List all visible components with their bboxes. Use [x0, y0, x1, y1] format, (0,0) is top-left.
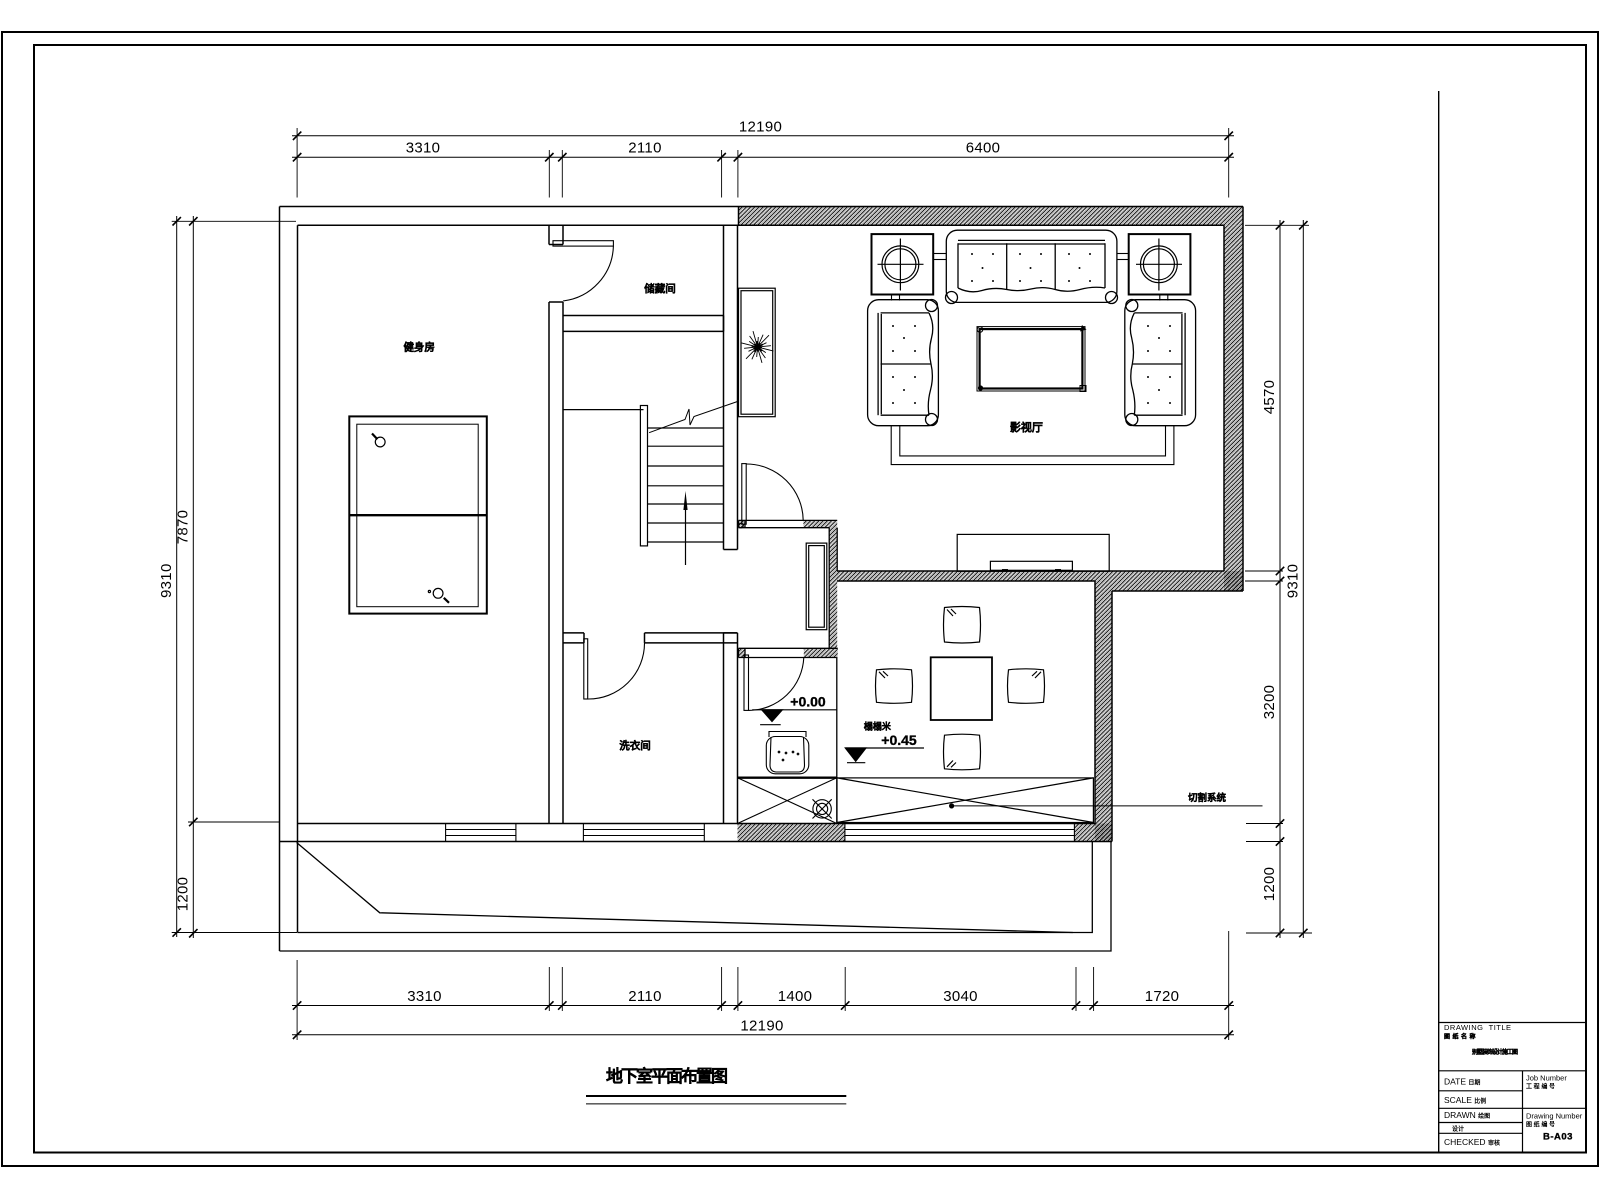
svg-text:+0.45: +0.45: [881, 732, 917, 748]
svg-text:储藏间: 储藏间: [644, 282, 676, 295]
svg-text:12190: 12190: [739, 119, 782, 136]
svg-text:榻榻米: 榻榻米: [863, 721, 892, 732]
svg-text:图 纸 编 号: 图 纸 编 号: [1526, 1121, 1555, 1129]
svg-text:9310: 9310: [1285, 564, 1302, 599]
svg-text:4570: 4570: [1261, 380, 1278, 415]
svg-text:3200: 3200: [1261, 685, 1278, 720]
svg-text:1400: 1400: [778, 988, 813, 1005]
svg-text:设计: 设计: [1452, 1125, 1464, 1133]
svg-text:工 程 编 号: 工 程 编 号: [1526, 1083, 1555, 1091]
svg-text:3310: 3310: [407, 988, 442, 1005]
svg-text:别墅装饰设计施工图: 别墅装饰设计施工图: [1471, 1048, 1518, 1056]
svg-text:9310: 9310: [158, 563, 175, 598]
svg-text:B-A03: B-A03: [1543, 1132, 1573, 1143]
svg-text:1200: 1200: [1261, 867, 1278, 902]
svg-text:健身房: 健身房: [403, 341, 435, 354]
svg-text:DRAWING TITLE: DRAWING TITLE: [1444, 1023, 1512, 1032]
svg-text:3310: 3310: [406, 140, 441, 157]
svg-text:切割系统: 切割系统: [1188, 792, 1227, 804]
svg-text:影视厅: 影视厅: [1010, 420, 1043, 434]
svg-text:图纸名称: 图纸名称: [1444, 1033, 1478, 1041]
svg-text:地下室平面布置图: 地下室平面布置图: [606, 1066, 727, 1086]
svg-text:2110: 2110: [628, 988, 661, 1005]
svg-text:1200: 1200: [175, 877, 192, 912]
svg-text:Job Number: Job Number: [1526, 1074, 1567, 1083]
svg-text:Drawing Number: Drawing Number: [1526, 1112, 1583, 1121]
svg-text:12190: 12190: [740, 1018, 783, 1035]
svg-text:2110: 2110: [628, 140, 661, 157]
svg-text:7870: 7870: [175, 510, 192, 545]
svg-text:6400: 6400: [966, 140, 1001, 157]
svg-text:3040: 3040: [943, 988, 978, 1005]
svg-text:1720: 1720: [1145, 988, 1180, 1005]
svg-text:+0.00: +0.00: [790, 694, 826, 710]
svg-text:洗衣间: 洗衣间: [619, 739, 651, 752]
